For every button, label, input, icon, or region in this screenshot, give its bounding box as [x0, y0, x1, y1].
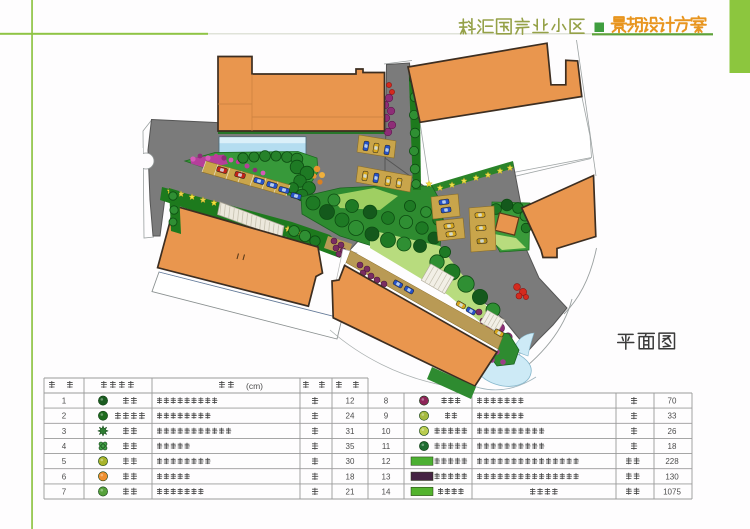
svg-text:8: 8 [384, 397, 389, 406]
svg-text:12: 12 [382, 457, 391, 466]
svg-text:228: 228 [665, 457, 679, 466]
svg-text:35: 35 [346, 442, 355, 451]
svg-text:18: 18 [668, 442, 677, 451]
svg-text:2: 2 [62, 412, 67, 421]
svg-text:12: 12 [346, 397, 355, 406]
svg-text:10: 10 [382, 427, 391, 436]
svg-text:26: 26 [668, 427, 677, 436]
svg-text:14: 14 [382, 487, 391, 496]
svg-text:11: 11 [382, 442, 391, 451]
svg-text:21: 21 [346, 487, 355, 496]
svg-text:130: 130 [665, 472, 679, 481]
svg-text:9: 9 [384, 412, 389, 421]
svg-text:4: 4 [62, 442, 67, 451]
svg-text:18: 18 [346, 472, 355, 481]
svg-text:6: 6 [62, 472, 67, 481]
svg-text:30: 30 [346, 457, 355, 466]
svg-text:(cm): (cm) [246, 381, 263, 391]
svg-text:13: 13 [382, 472, 391, 481]
svg-text:1: 1 [62, 397, 67, 406]
svg-text:31: 31 [346, 427, 355, 436]
svg-text:3: 3 [62, 427, 67, 436]
svg-text:70: 70 [668, 397, 677, 406]
svg-text:5: 5 [62, 457, 67, 466]
svg-text:1075: 1075 [663, 487, 681, 496]
svg-text:33: 33 [668, 412, 677, 421]
svg-text:24: 24 [346, 412, 355, 421]
svg-text:7: 7 [62, 487, 67, 496]
